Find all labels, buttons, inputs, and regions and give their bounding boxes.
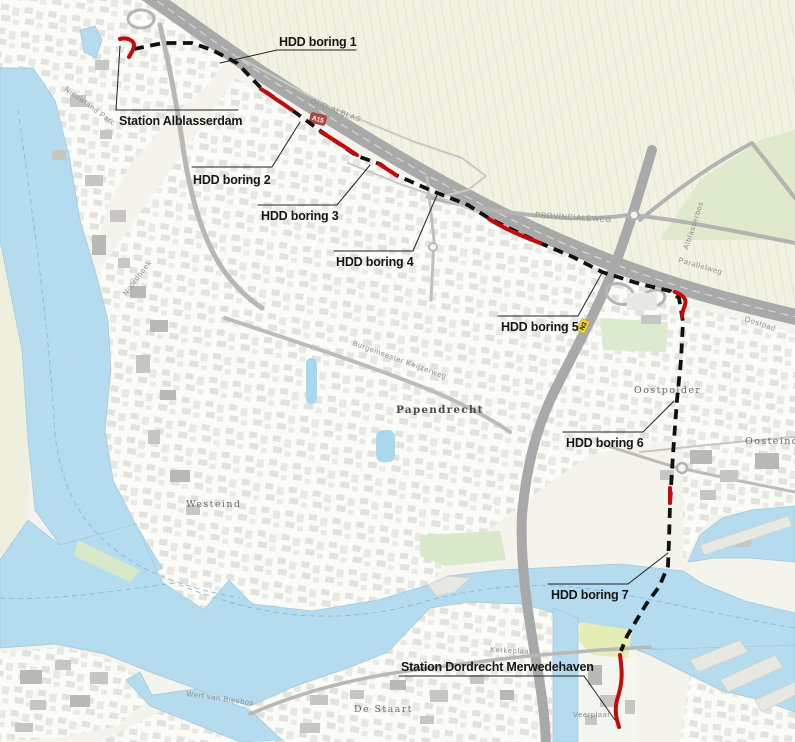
svg-text:HDD boring 2: HDD boring 2 [193, 173, 271, 187]
svg-text:HDD boring 5: HDD boring 5 [501, 320, 579, 334]
svg-text:Station Alblasserdam: Station Alblasserdam [119, 114, 242, 128]
place-label-de-staart: De Staart [354, 704, 413, 715]
place-label-oosteind: Oosteind [745, 436, 795, 447]
place-label-westeind: Westeind [186, 499, 241, 510]
svg-text:Station Dordrecht Merwedehaven: Station Dordrecht Merwedehaven [401, 660, 594, 674]
place-label-papendrecht: Papendrecht [396, 404, 484, 416]
road-label-veerplaat: Veerplaat [573, 710, 610, 719]
svg-text:HDD boring 6: HDD boring 6 [566, 436, 644, 450]
place-label-oostpolder: Oostpolder [634, 385, 701, 396]
map-canvas: Papendrecht Westeind Oosteind Oostpolder… [0, 0, 795, 742]
svg-text:HDD boring 4: HDD boring 4 [336, 255, 414, 269]
svg-text:HDD boring 1: HDD boring 1 [279, 35, 357, 49]
map-figure: Papendrecht Westeind Oosteind Oostpolder… [0, 0, 795, 742]
svg-text:HDD boring 3: HDD boring 3 [261, 209, 339, 223]
svg-text:HDD boring 7: HDD boring 7 [551, 588, 629, 602]
